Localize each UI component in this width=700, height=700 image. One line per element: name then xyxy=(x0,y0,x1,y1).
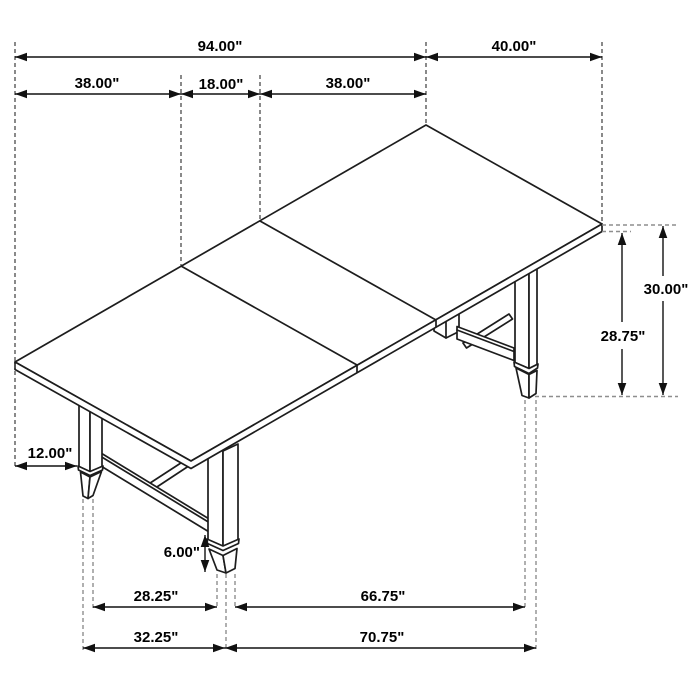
tabletop xyxy=(15,125,602,469)
label-right-section: 38.00" xyxy=(326,75,371,92)
table-dimension-diagram: 94.00" 40.00" 38.00" 18.00" 38.00" 30.00… xyxy=(0,0,700,700)
label-left-section: 38.00" xyxy=(75,75,120,92)
label-outer-leg-spacing: 32.25" xyxy=(134,629,179,646)
label-overall-length: 94.00" xyxy=(198,38,243,55)
table-leg-left-front xyxy=(207,444,239,573)
label-outer-front-spacing: 70.75" xyxy=(360,629,405,646)
diagram-canvas: 94.00" 40.00" 38.00" 18.00" 38.00" 30.00… xyxy=(0,0,700,700)
label-leg-inset: 12.00" xyxy=(28,445,73,462)
label-table-width: 40.00" xyxy=(492,38,537,55)
label-center-leaf: 18.00" xyxy=(199,76,244,93)
label-inner-leg-spacing: 28.25" xyxy=(134,588,179,605)
label-front-leg-spacing: 66.75" xyxy=(361,588,406,605)
label-table-height: 30.00" xyxy=(644,281,689,298)
label-foot-height: 6.00" xyxy=(164,544,200,561)
label-height-under-top: 28.75" xyxy=(601,328,646,345)
